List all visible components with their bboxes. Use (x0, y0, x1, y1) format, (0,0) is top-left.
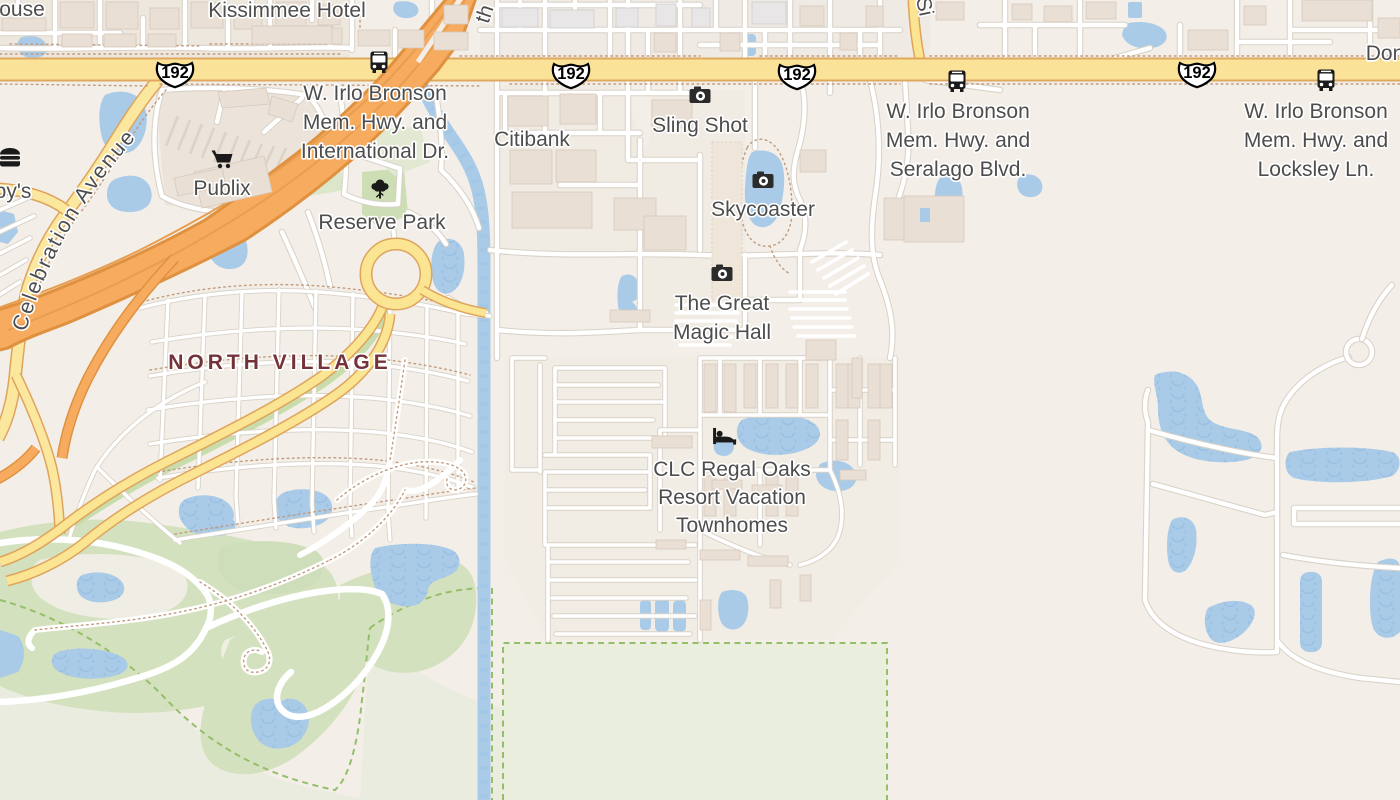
svg-text:NORTH VILLAGE: NORTH VILLAGE (168, 351, 392, 374)
svg-text:Locksley Ln.: Locksley Ln. (1258, 158, 1375, 181)
svg-text:International Dr.: International Dr. (301, 140, 449, 163)
svg-text:Townhomes: Townhomes (676, 514, 788, 537)
svg-text:by's: by's (0, 180, 31, 203)
svg-text:192: 192 (1183, 64, 1211, 82)
svg-text:Mem. Hwy. and: Mem. Hwy. and (886, 129, 1030, 152)
svg-text:The Great: The Great (675, 292, 770, 315)
svg-text:Mem. Hwy. and: Mem. Hwy. and (303, 111, 447, 134)
svg-text:W. Irlo Bronson: W. Irlo Bronson (1244, 100, 1388, 123)
svg-text:W. Irlo Bronson: W. Irlo Bronson (886, 100, 1030, 123)
svg-text:W. Irlo Bronson: W. Irlo Bronson (303, 82, 447, 105)
svg-text:Citibank: Citibank (494, 128, 570, 151)
svg-text:Don: Don (1366, 42, 1400, 65)
svg-text:Mem. Hwy. and: Mem. Hwy. and (1244, 129, 1388, 152)
svg-text:Publix: Publix (193, 177, 251, 200)
svg-text:192: 192 (161, 64, 189, 82)
svg-text:ouse: ouse (0, 0, 45, 21)
svg-text:CLC Regal Oaks: CLC Regal Oaks (653, 458, 811, 481)
svg-text:Reserve Park: Reserve Park (318, 211, 446, 234)
svg-text:Sling Shot: Sling Shot (652, 114, 748, 137)
svg-text:192: 192 (783, 66, 811, 84)
svg-text:Kissimmee Hotel: Kissimmee Hotel (208, 0, 366, 22)
svg-text:Magic Hall: Magic Hall (673, 321, 771, 344)
svg-text:Skycoaster: Skycoaster (711, 198, 815, 221)
svg-text:192: 192 (557, 65, 585, 83)
svg-text:Seralago Blvd.: Seralago Blvd. (890, 158, 1027, 181)
svg-text:Resort Vacation: Resort Vacation (658, 486, 806, 509)
